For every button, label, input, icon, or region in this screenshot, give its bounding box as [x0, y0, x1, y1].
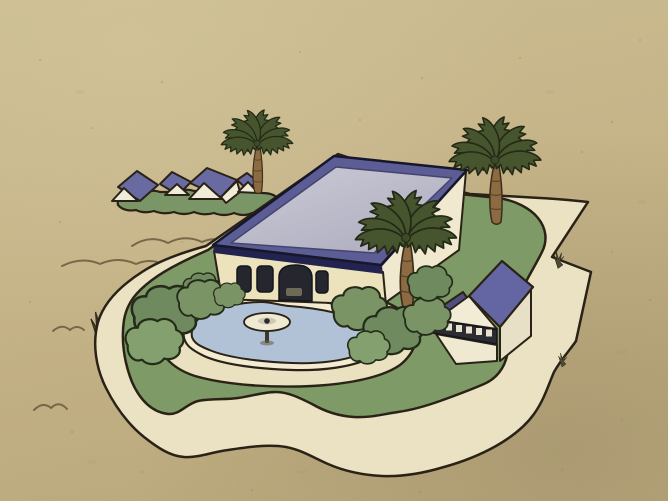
cartoon-scene	[0, 0, 668, 501]
house-window-2	[257, 266, 273, 292]
arch-furniture	[286, 288, 302, 296]
desert-estate-illustration	[0, 0, 668, 501]
fountain-base-shadow	[260, 341, 274, 346]
house-window-3	[316, 271, 328, 293]
fountain-spout	[264, 318, 270, 324]
